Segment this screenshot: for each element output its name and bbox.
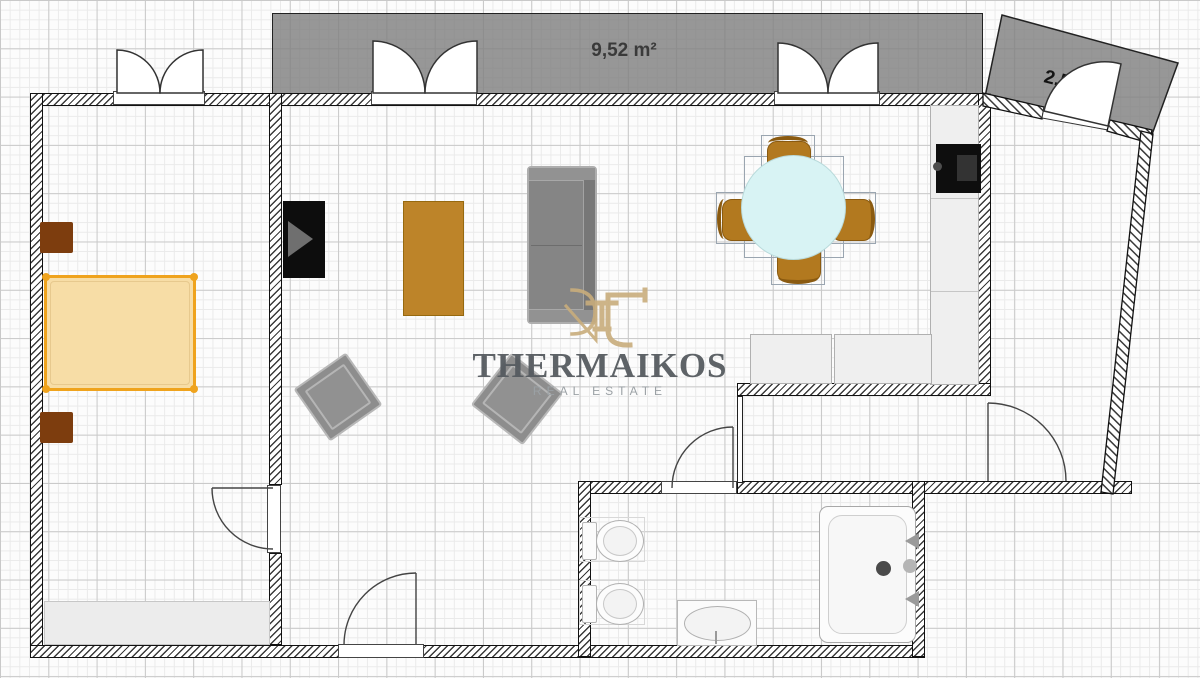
washbasin-bowl (684, 606, 751, 641)
threshold-entrance-door (338, 644, 424, 658)
bed-corner-post (42, 273, 50, 281)
wall-left (30, 93, 43, 657)
toilet-2 (579, 580, 645, 625)
chair-backrest (768, 136, 808, 150)
wall-bath-left (578, 481, 591, 657)
bed-corner-post (42, 385, 50, 393)
washbasin (677, 600, 757, 646)
door-bedroom (212, 488, 273, 549)
threshold-balcony-small-door (1042, 107, 1110, 130)
chair-backrest (778, 270, 818, 284)
threshold-bedroom-door (267, 485, 281, 553)
toilet-bowl-inner (603, 589, 637, 619)
double-bed (44, 275, 196, 391)
bathtub (819, 506, 916, 643)
threshold-bathroom-door (661, 481, 737, 494)
kitchen-counter-bottom-2 (834, 334, 932, 384)
door-balcony-small (1044, 62, 1121, 126)
cooktop (936, 144, 981, 193)
bed-corner-post (190, 273, 198, 281)
door-entrance (344, 573, 416, 645)
balcony-small-label: 2,51 m² (1042, 66, 1111, 102)
door-bathroom (672, 427, 733, 488)
toilet-bowl-inner (603, 526, 637, 556)
wall-kitchen-right (978, 93, 991, 395)
balcony-small (985, 15, 1178, 140)
balcony-large-label: 9,52 m² (559, 40, 689, 62)
counter-divider (931, 198, 978, 199)
threshold-balcony-door-1 (371, 91, 477, 105)
tv-screen (288, 221, 313, 257)
watermark-title: THERMAIKOS (455, 346, 745, 386)
wall-angled-right (1101, 131, 1153, 494)
bathtub-inner (828, 515, 907, 634)
sofa-armrest (529, 309, 595, 322)
sofa-cushion-seam (531, 245, 582, 246)
threshold-bedroom-exterior-door (113, 91, 205, 105)
bed-mattress (50, 281, 190, 385)
armchair-left (293, 352, 382, 441)
sofa-backrest (583, 180, 595, 310)
bathtub-valve (903, 559, 917, 573)
door-side-room (988, 403, 1066, 481)
bathtub-drain (876, 561, 891, 576)
washbasin-tap (715, 631, 717, 644)
wall-bedroom-divider-upper (269, 93, 282, 485)
watermark-subtitle: REAL ESTATE (455, 384, 745, 398)
wardrobe (44, 601, 270, 645)
armchair-seat (305, 364, 372, 431)
toilet-tank (582, 585, 597, 623)
nightstand-top (40, 222, 73, 253)
toilet-1 (579, 517, 645, 562)
sofa (527, 166, 597, 324)
counter-divider (931, 291, 978, 292)
floor-plan: 9,52 m² (0, 0, 1200, 678)
wall-angled-top-b (1107, 120, 1152, 143)
coffee-table (403, 201, 464, 316)
kitchen-counter-bottom-1 (750, 334, 832, 384)
wall-bedroom-divider-lower (269, 553, 282, 645)
nightstand-bottom (40, 412, 73, 443)
wall-angled-top-a (983, 93, 1044, 119)
toilet-tank (582, 522, 597, 560)
bed-corner-post (190, 385, 198, 393)
dining-table (741, 155, 846, 260)
wall-bath-top-right (737, 481, 1132, 494)
chair-backrest (861, 199, 875, 239)
wall-hallway-partition (737, 396, 743, 483)
chair-backrest (717, 199, 731, 239)
tv (283, 201, 325, 278)
bathtub-tap-handle (905, 591, 919, 607)
cooktop-surface (957, 155, 977, 181)
cooktop-knob (933, 162, 942, 171)
threshold-balcony-door-2 (774, 91, 880, 105)
bathtub-tap-handle (905, 533, 919, 549)
wall-bottom (30, 645, 925, 658)
french-door-bedroom (117, 50, 203, 93)
